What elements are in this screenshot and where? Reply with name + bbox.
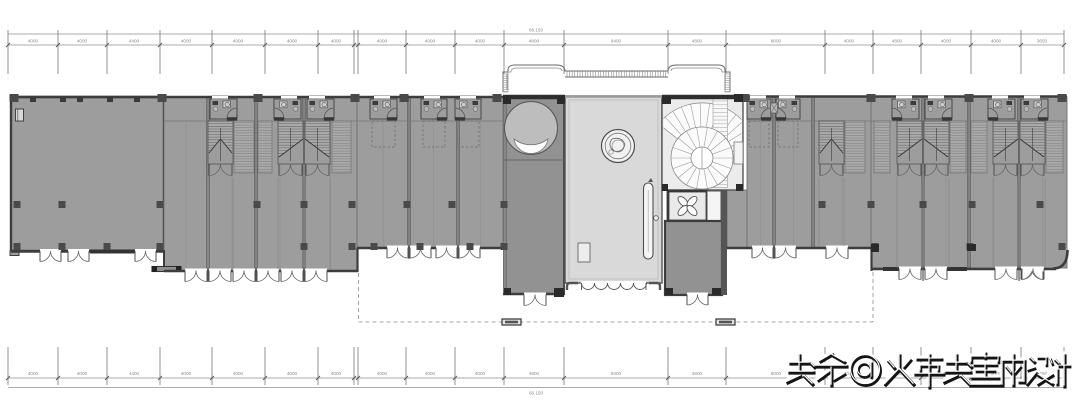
svg-text:4800: 4800 (692, 371, 703, 376)
svg-text:4000: 4000 (331, 39, 342, 44)
svg-text:4000: 4000 (77, 371, 88, 376)
svg-text:4800: 4800 (892, 39, 903, 44)
svg-text:4000: 4000 (991, 39, 1002, 44)
svg-text:4400: 4400 (129, 371, 140, 376)
svg-text:4400: 4400 (129, 39, 140, 44)
svg-text:4000: 4000 (181, 39, 192, 44)
svg-text:8000: 8000 (771, 371, 782, 376)
svg-text:4000: 4000 (28, 371, 39, 376)
svg-text:4000: 4000 (425, 39, 436, 44)
svg-text:3650: 3650 (1037, 39, 1048, 44)
svg-text:8400: 8400 (611, 371, 622, 376)
svg-text:8000: 8000 (771, 39, 782, 44)
svg-text:66.150: 66.150 (529, 391, 543, 396)
svg-text:4000: 4000 (377, 371, 388, 376)
svg-text:4000: 4000 (233, 371, 244, 376)
svg-text:8400: 8400 (611, 39, 622, 44)
svg-text:4800: 4800 (529, 39, 540, 44)
svg-text:4000: 4000 (233, 39, 244, 44)
svg-text:4000: 4000 (377, 39, 388, 44)
svg-text:4800: 4800 (692, 39, 703, 44)
svg-text:4000: 4000 (475, 371, 486, 376)
svg-text:4000: 4000 (287, 371, 298, 376)
svg-text:4000: 4000 (181, 371, 192, 376)
svg-text:4000: 4000 (475, 39, 486, 44)
svg-text:4000: 4000 (844, 39, 855, 44)
svg-text:4800: 4800 (529, 371, 540, 376)
svg-text:4000: 4000 (941, 39, 952, 44)
svg-text:4000: 4000 (77, 39, 88, 44)
svg-text:4000: 4000 (331, 371, 342, 376)
svg-text:4000: 4000 (425, 371, 436, 376)
svg-text:66.150: 66.150 (529, 28, 543, 33)
svg-text:4000: 4000 (287, 39, 298, 44)
svg-text:4000: 4000 (28, 39, 39, 44)
